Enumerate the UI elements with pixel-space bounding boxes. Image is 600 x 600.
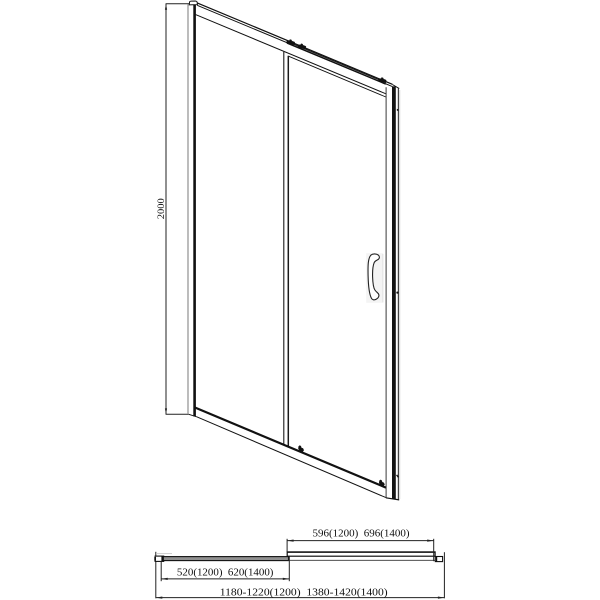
svg-text:2000: 2000 — [156, 198, 167, 219]
svg-text:1180-1220(1200) 1380-1420(140: 1180-1220(1200) 1380-1420(1400) — [220, 587, 388, 598]
svg-text:520(1200) 620(1400): 520(1200) 620(1400) — [177, 568, 274, 579]
svg-text:596(1200) 696(1400): 596(1200) 696(1400) — [313, 529, 410, 540]
